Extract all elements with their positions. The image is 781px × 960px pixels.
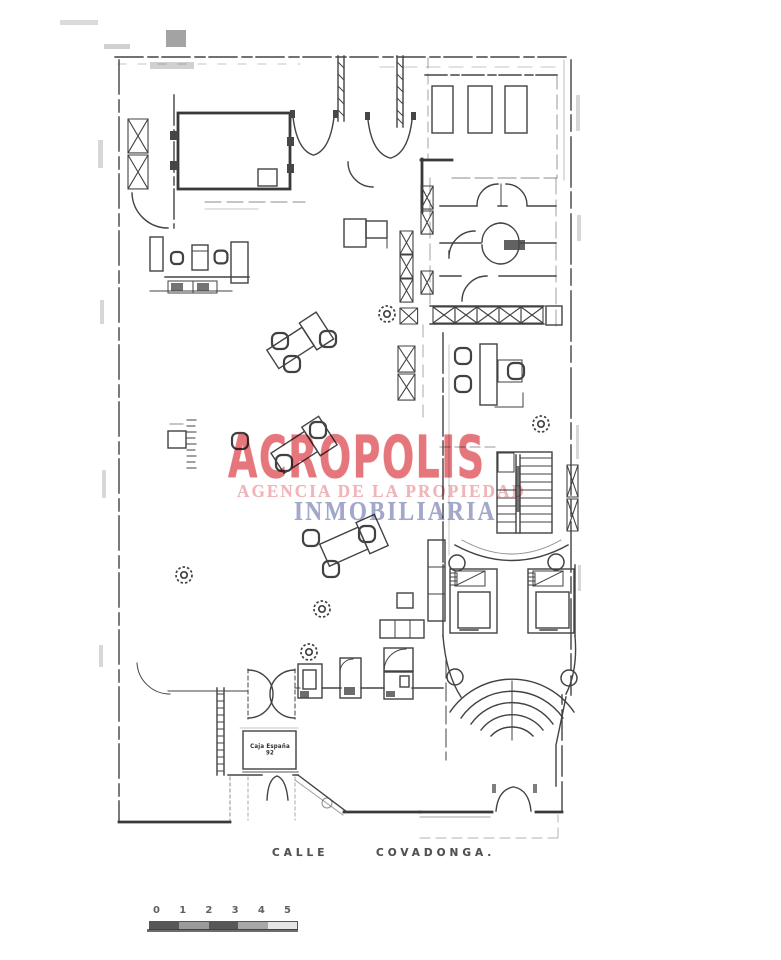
watermark-inmobiliaria-line: INMOBILIARIA <box>294 496 497 527</box>
revolving-door <box>248 669 295 719</box>
wall-desk <box>344 219 387 248</box>
elevator-right <box>528 569 574 633</box>
scale-tick: 1 <box>179 905 186 916</box>
street-label-covadonga: COVADONGA. <box>376 847 495 859</box>
left-wall-radiators <box>128 30 194 228</box>
security-gates <box>137 648 443 699</box>
top-corridor-doors <box>290 56 416 187</box>
scale-bar-segment <box>238 922 267 929</box>
scanned-floor-plan-page: ACROPOLIS AGENCIA DE LA PROPIEDAD INMOBI… <box>0 0 781 960</box>
scale-bar-segment <box>150 922 179 929</box>
elevator-left <box>450 569 497 633</box>
desk-cluster-1 <box>264 312 336 373</box>
partition-radiators <box>398 231 418 400</box>
right-rooms <box>421 159 562 330</box>
lounge-benches <box>380 540 445 638</box>
scale-bar-segment <box>209 922 238 929</box>
reception-desk-group <box>150 237 249 293</box>
scale-bar-segment <box>179 922 208 929</box>
wall-annotation <box>168 420 196 468</box>
scale-tick: 4 <box>258 905 265 916</box>
scale-bar-segment <box>268 922 297 929</box>
scale-tick: 0 <box>153 905 160 916</box>
scale-tick: 2 <box>205 905 212 916</box>
scale-tick: 5 <box>284 905 291 916</box>
entrance-fan-steps <box>446 660 574 786</box>
entrance-door-right <box>420 695 562 817</box>
right-desk <box>455 344 524 407</box>
meeting-room <box>170 95 305 228</box>
scale-bar-ticks: 0 1 2 3 4 5 <box>153 905 291 916</box>
elevator-lobby <box>443 554 577 697</box>
scale-tick: 3 <box>232 905 239 916</box>
entrance-mat-label: Caja España 92 <box>247 743 293 756</box>
street-label-calle: CALLE <box>272 847 328 859</box>
scale-bar-baseline <box>147 929 298 932</box>
